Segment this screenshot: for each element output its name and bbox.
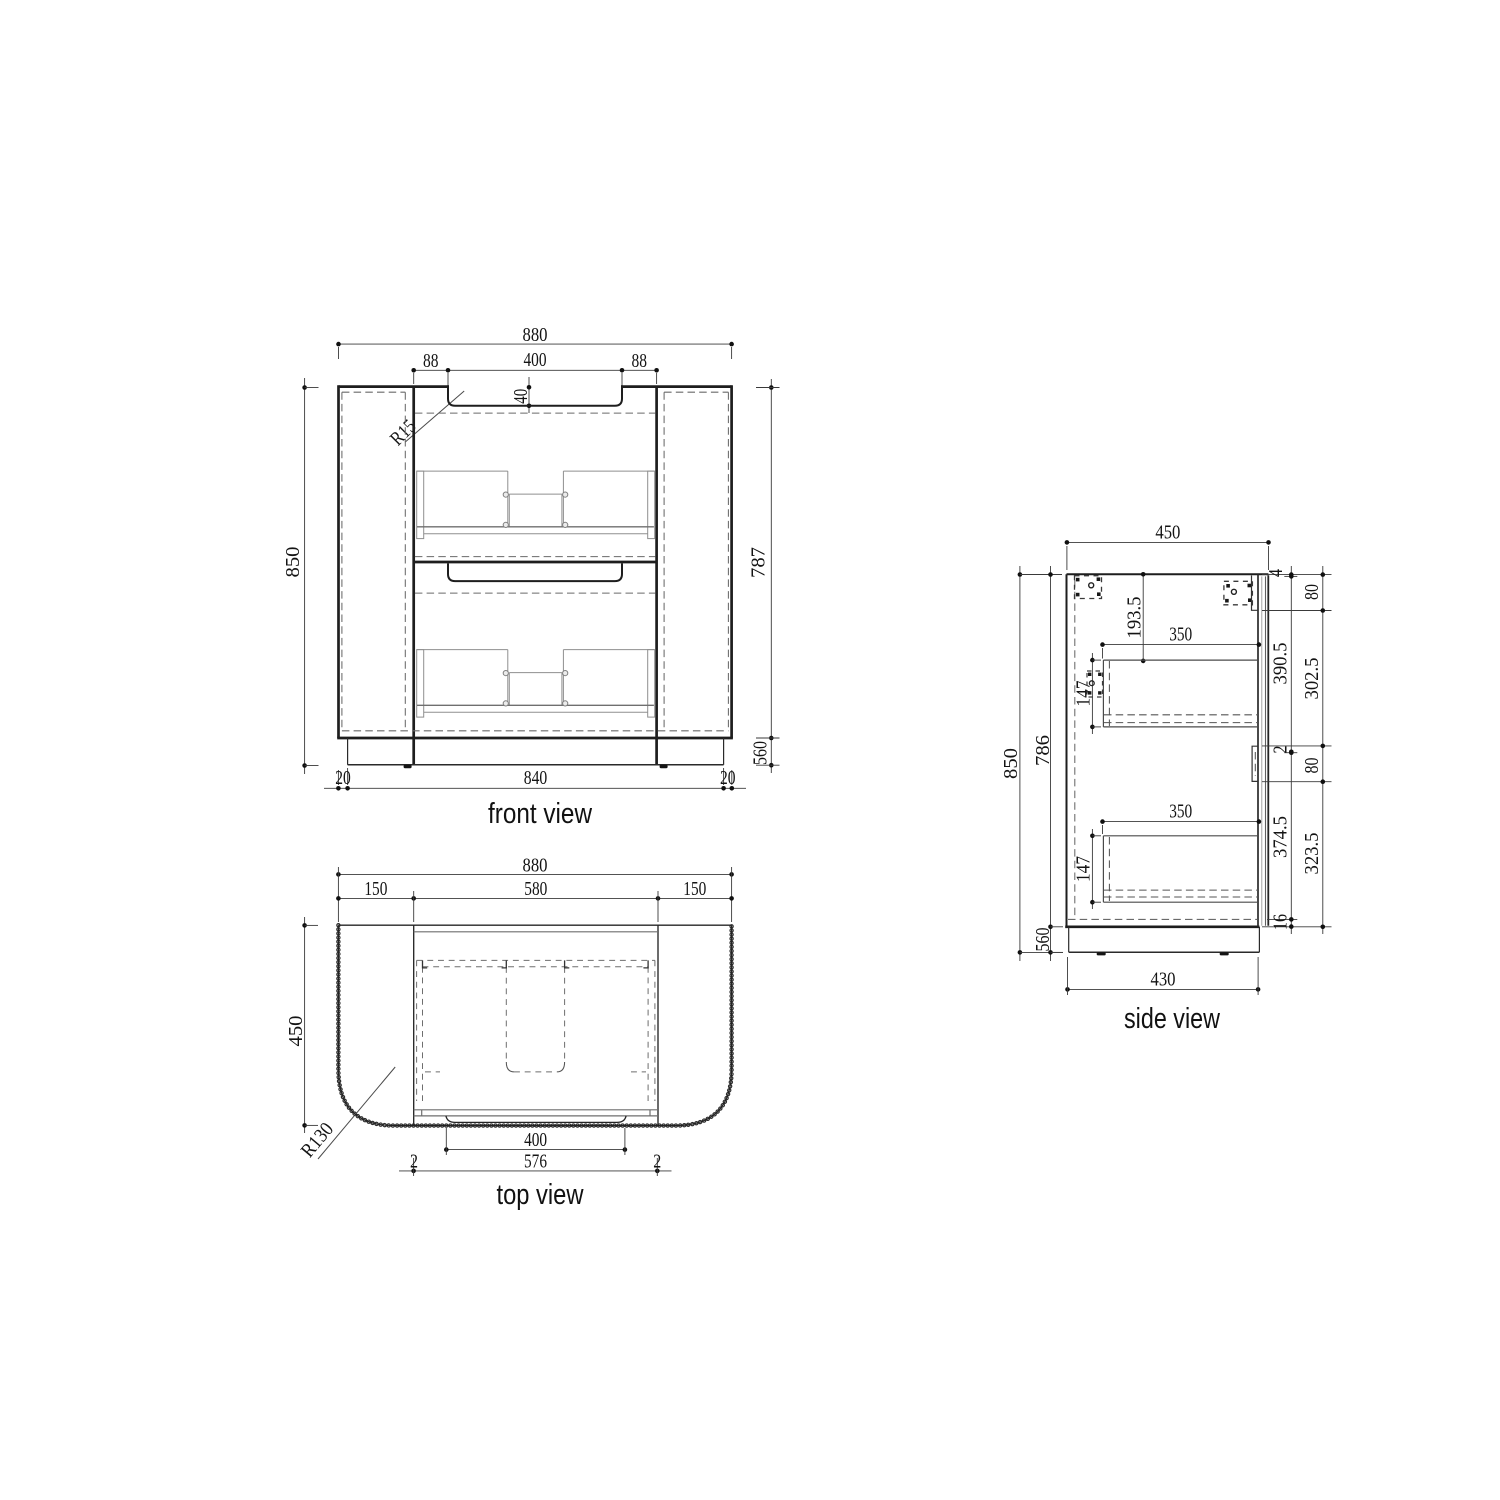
svg-text:560: 560 <box>750 741 772 765</box>
svg-text:880: 880 <box>523 324 548 346</box>
svg-text:2: 2 <box>1270 746 1292 754</box>
svg-text:2: 2 <box>410 1151 418 1173</box>
svg-text:350: 350 <box>1169 801 1192 823</box>
svg-text:R15: R15 <box>386 415 421 450</box>
svg-text:20: 20 <box>335 767 351 789</box>
svg-text:850: 850 <box>282 547 304 578</box>
svg-text:front view: front view <box>488 798 593 830</box>
svg-text:374.5: 374.5 <box>1270 816 1292 858</box>
svg-text:2: 2 <box>653 1151 661 1173</box>
svg-text:40: 40 <box>510 389 532 404</box>
svg-text:88: 88 <box>423 350 439 372</box>
svg-text:840: 840 <box>524 767 548 789</box>
svg-text:88: 88 <box>632 350 648 372</box>
svg-text:400: 400 <box>524 1129 547 1151</box>
svg-text:850: 850 <box>1000 748 1022 779</box>
svg-text:350: 350 <box>1169 624 1192 646</box>
svg-text:80: 80 <box>1301 758 1323 774</box>
svg-text:450: 450 <box>285 1016 307 1047</box>
svg-text:193.5: 193.5 <box>1124 597 1146 639</box>
svg-text:150: 150 <box>683 878 706 900</box>
svg-text:side view: side view <box>1124 1003 1221 1035</box>
svg-text:786: 786 <box>1032 735 1054 766</box>
svg-text:147: 147 <box>1073 856 1095 882</box>
svg-text:4: 4 <box>1265 569 1287 577</box>
svg-text:390.5: 390.5 <box>1270 643 1292 685</box>
svg-text:430: 430 <box>1151 969 1176 991</box>
svg-text:880: 880 <box>523 855 548 877</box>
svg-text:400: 400 <box>524 349 547 371</box>
svg-text:top view: top view <box>497 1179 585 1211</box>
svg-text:787: 787 <box>748 547 770 578</box>
svg-text:450: 450 <box>1155 522 1180 544</box>
svg-text:560: 560 <box>1032 928 1054 952</box>
svg-text:20: 20 <box>720 767 736 789</box>
svg-text:323.5: 323.5 <box>1301 833 1323 875</box>
svg-text:80: 80 <box>1301 584 1323 600</box>
svg-text:302.5: 302.5 <box>1301 658 1323 700</box>
svg-text:150: 150 <box>364 878 387 900</box>
svg-text:576: 576 <box>524 1151 547 1173</box>
svg-text:16: 16 <box>1270 914 1292 930</box>
svg-text:580: 580 <box>524 878 547 900</box>
